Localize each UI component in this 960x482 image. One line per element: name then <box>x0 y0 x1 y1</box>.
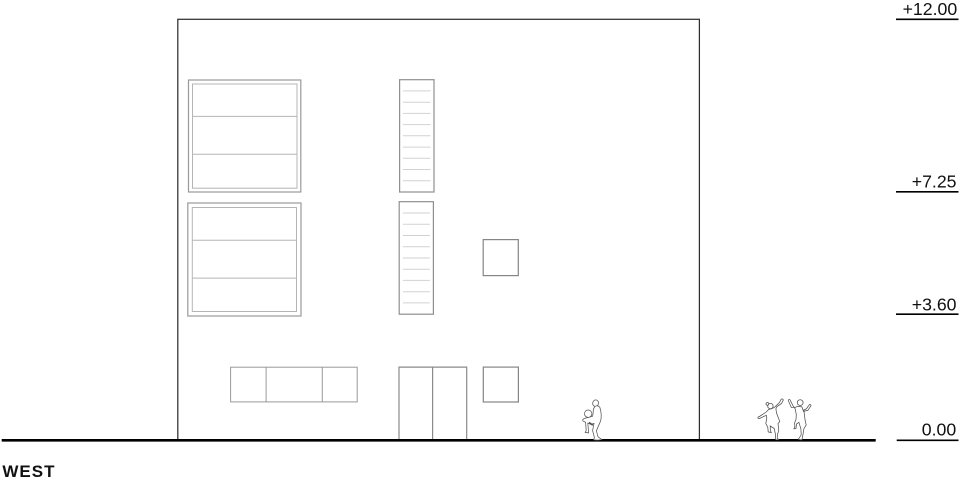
svg-text:+12.00: +12.00 <box>903 0 958 19</box>
svg-text:+7.25: +7.25 <box>912 172 957 192</box>
svg-text:WEST: WEST <box>2 462 55 481</box>
svg-text:0.00: 0.00 <box>922 420 957 440</box>
svg-text:+3.60: +3.60 <box>912 295 957 315</box>
